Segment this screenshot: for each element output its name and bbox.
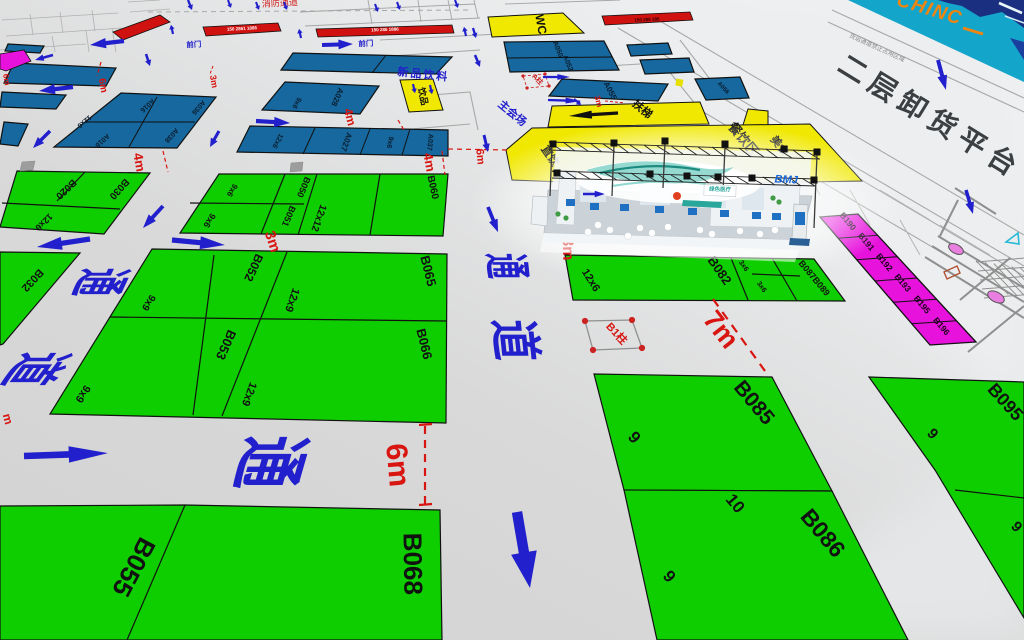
svg-text:通: 通 <box>221 435 319 488</box>
svg-text:前门: 前门 <box>186 39 202 50</box>
svg-text:BMJ: BMJ <box>774 173 799 186</box>
svg-text:通: 通 <box>62 268 138 296</box>
svg-text:6m: 6m <box>473 148 486 165</box>
svg-text:150 286 1886: 150 286 1886 <box>371 27 399 33</box>
svg-text:通: 通 <box>478 253 533 279</box>
svg-text:B068: B068 <box>397 533 428 596</box>
svg-text:前门: 前门 <box>358 38 374 49</box>
svg-text:道: 道 <box>484 319 547 361</box>
svg-text:6m: 6m <box>379 442 416 488</box>
